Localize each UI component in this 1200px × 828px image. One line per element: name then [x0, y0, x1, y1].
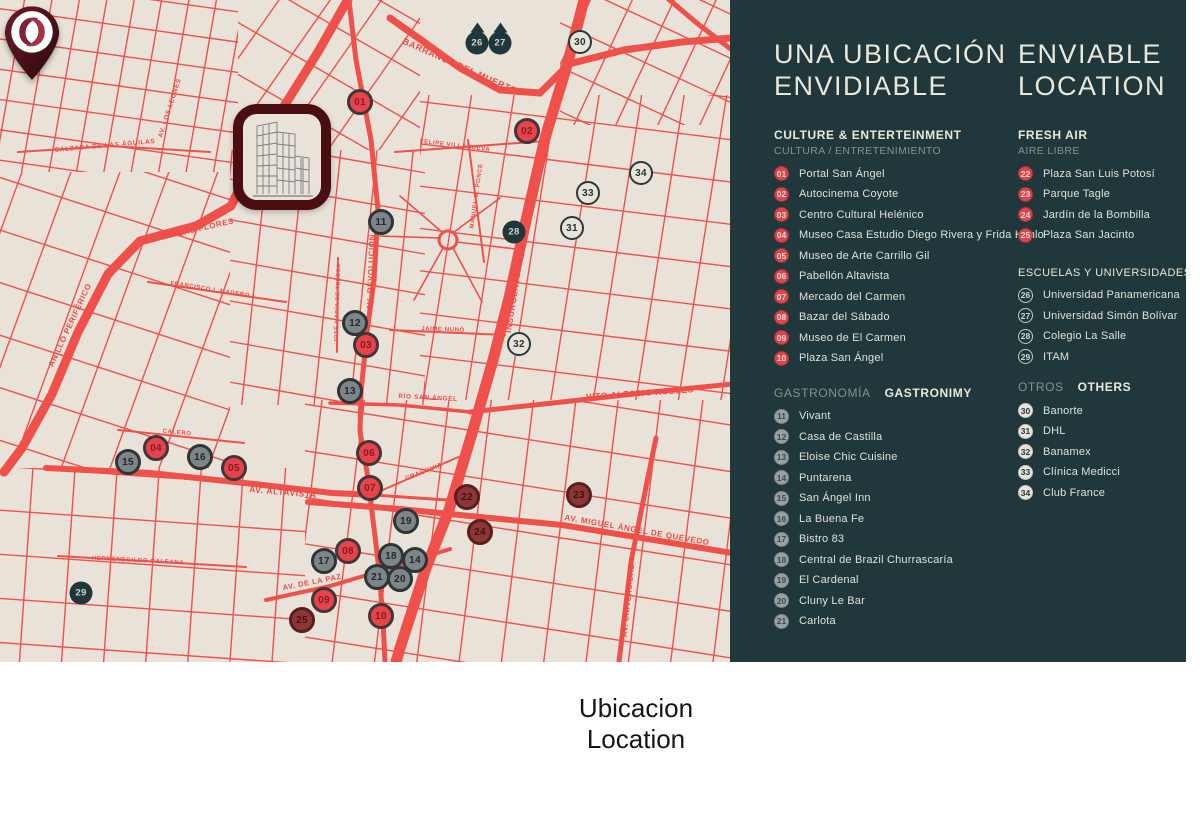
legend-label: Carlota	[799, 615, 836, 627]
legend-item-19: 19El Cardenal	[774, 573, 1010, 588]
map-marker-04: 04	[143, 435, 169, 461]
legend-label: Pabellón Altavista	[799, 270, 889, 282]
legend-marker-01: 01	[774, 166, 789, 181]
legend-label: Bazar del Sábado	[799, 311, 890, 323]
map-marker-05: 05	[221, 455, 247, 481]
legend-marker-10: 10	[774, 351, 789, 366]
legend-item-07: 07Mercado del Carmen	[774, 289, 1010, 304]
map-marker-15: 15	[115, 449, 141, 475]
legend-marker-26: 26	[1018, 288, 1033, 303]
gastronomy-heading: GASTRONOMÍAGASTRONIMY	[774, 386, 1010, 400]
legend-item-15: 15San Ángel Inn	[774, 491, 1010, 506]
map-marker-30: 30	[568, 30, 592, 54]
legend-marker-17: 17	[774, 532, 789, 547]
fresh-air-heading-en: FRESH AIR	[1018, 128, 1178, 142]
map-marker-16: 16	[187, 444, 213, 470]
legend-item-20: 20Cluny Le Bar	[774, 593, 1010, 608]
map-marker-01: 01	[347, 89, 373, 115]
legend-label: Universidad Simón Bolívar	[1043, 310, 1178, 322]
map-marker-29: 29	[70, 582, 93, 605]
map-marker-19: 19	[393, 508, 419, 534]
legend-item-25: 25Plaza San Jacinto	[1018, 228, 1178, 243]
legend-label: La Buena Fe	[799, 513, 864, 525]
section-schools: ESCUELAS Y UNIVERSIDADES 26Universidad P…	[1018, 267, 1178, 365]
legend-marker-18: 18	[774, 552, 789, 567]
schools-list: 26Universidad Panamericana27Universidad …	[1018, 288, 1178, 365]
legend-marker-08: 08	[774, 310, 789, 325]
legend-label: Club France	[1043, 487, 1105, 499]
legend-label: El Cardenal	[799, 574, 859, 586]
legend-item-02: 02Autocinema Coyote	[774, 187, 1010, 202]
legend-label: Clínica Medicci	[1043, 466, 1120, 478]
culture-heading-en: CULTURE & ENTERTEINMENT	[774, 128, 1010, 142]
map-marker-08: 08	[335, 538, 361, 564]
legend-label: Plaza San Jacinto	[1043, 229, 1134, 241]
legend-item-23: 23Parque Tagle	[1018, 187, 1178, 202]
legend-label: ITAM	[1043, 351, 1069, 363]
legend-item-32: 32Banamex	[1018, 444, 1178, 459]
legend-item-08: 08Bazar del Sábado	[774, 310, 1010, 325]
panel-left-column: CULTURE & ENTERTEINMENT CULTURA / ENTRET…	[774, 128, 1010, 634]
legend-marker-21: 21	[774, 614, 789, 629]
map-marker-32: 32	[507, 332, 531, 356]
page-caption: Ubicacion Location	[579, 693, 693, 755]
legend-marker-19: 19	[774, 573, 789, 588]
legend-item-03: 03Centro Cultural Helénico	[774, 207, 1010, 222]
legend-label: Central de Brazil Churrascaría	[799, 554, 953, 566]
legend-marker-04: 04	[774, 228, 789, 243]
map-marker-13: 13	[337, 378, 363, 404]
legend-item-17: 17Bistro 83	[774, 532, 1010, 547]
legend-label: Banamex	[1043, 446, 1091, 458]
legend-marker-29: 29	[1018, 349, 1033, 364]
legend-marker-06: 06	[774, 269, 789, 284]
map-marker-06: 06	[356, 440, 382, 466]
legend-marker-16: 16	[774, 511, 789, 526]
map-marker-10: 10	[368, 603, 394, 629]
legend-item-24: 24Jardín de la Bombilla	[1018, 207, 1178, 222]
legend-item-21: 21Carlota	[774, 614, 1010, 629]
location-map: CALZADA DE LAS ÁGUILASAV. LOS LEONESBARR…	[0, 0, 730, 662]
legend-item-12: 12Casa de Castilla	[774, 429, 1010, 444]
others-heading: OTROSOTHERS	[1018, 380, 1178, 394]
legend-label: Jardín de la Bombilla	[1043, 209, 1150, 221]
legend-marker-11: 11	[774, 409, 789, 424]
panel-right-column: FRESH AIR AIRE LIBRE 22Plaza San Luis Po…	[1018, 128, 1178, 506]
legend-item-16: 16La Buena Fe	[774, 511, 1010, 526]
gastronomy-list: 11Vivant12Casa de Castilla13Eloise Chic …	[774, 409, 1010, 629]
pin-triangle-icon	[470, 23, 484, 33]
legend-marker-14: 14	[774, 470, 789, 485]
legend-marker-25: 25	[1018, 228, 1033, 243]
legend-item-14: 14Puntarena	[774, 470, 1010, 485]
legend-label: Bistro 83	[799, 533, 844, 545]
legend-marker-09: 09	[774, 330, 789, 345]
legend-marker-24: 24	[1018, 207, 1033, 222]
legend-item-29: 29ITAM	[1018, 349, 1178, 364]
map-marker-11: 11	[368, 209, 394, 235]
schools-heading: ESCUELAS Y UNIVERSIDADES	[1018, 267, 1178, 279]
legend-label: Portal San Ángel	[799, 168, 885, 180]
map-marker-17: 17	[311, 548, 337, 574]
legend-item-09: 09Museo de El Carmen	[774, 330, 1010, 345]
building-frame	[233, 104, 331, 210]
legend-label: Plaza San Ángel	[799, 352, 883, 364]
culture-heading-es: CULTURA / ENTRETENIMIENTO	[774, 145, 1010, 157]
legend-marker-30: 30	[1018, 403, 1033, 418]
pin-triangle-icon	[493, 23, 507, 33]
map-marker-26: 26	[466, 32, 489, 55]
legend-label: Puntarena	[799, 472, 852, 484]
legend-label: Eloise Chic Cuisine	[799, 451, 898, 463]
legend-label: Plaza San Luis Potosí	[1043, 168, 1155, 180]
legend-item-10: 10Plaza San Ángel	[774, 351, 1010, 366]
map-marker-25: 25	[289, 607, 315, 633]
fresh-air-list: 22Plaza San Luis Potosí23Parque Tagle24J…	[1018, 166, 1178, 243]
legend-label: Museo de Arte Carrillo Gil	[799, 250, 930, 262]
legend-marker-07: 07	[774, 289, 789, 304]
legend-item-31: 31DHL	[1018, 424, 1178, 439]
legend-label: Casa de Castilla	[799, 431, 882, 443]
section-fresh-air: FRESH AIR AIRE LIBRE 22Plaza San Luis Po…	[1018, 128, 1178, 243]
legend-label: Banorte	[1043, 405, 1083, 417]
legend-item-28: 28Colegio La Salle	[1018, 329, 1178, 344]
legend-item-30: 30Banorte	[1018, 403, 1178, 418]
map-marker-09: 09	[311, 587, 337, 613]
panel-title-es: UNA UBICACIÓN ENVIDIABLE	[774, 38, 1007, 102]
legend-item-33: 33Clínica Medicci	[1018, 465, 1178, 480]
brand-pin	[0, 0, 64, 83]
map-marker-02: 02	[514, 118, 540, 144]
legend-item-05: 05Museo de Arte Carrillo Gil	[774, 248, 1010, 263]
map-marker-33: 33	[576, 181, 600, 205]
legend-label: Vivant	[799, 410, 831, 422]
map-marker-12: 12	[342, 310, 368, 336]
section-gastronomy: GASTRONOMÍAGASTRONIMY 11Vivant12Casa de …	[774, 386, 1010, 629]
legend-marker-32: 32	[1018, 444, 1033, 459]
legend-label: Universidad Panamericana	[1043, 289, 1180, 301]
legend-label: Cluny Le Bar	[799, 595, 865, 607]
section-culture: CULTURE & ENTERTEINMENT CULTURA / ENTRET…	[774, 128, 1010, 366]
legend-marker-23: 23	[1018, 187, 1033, 202]
map-marker-21: 21	[364, 564, 390, 590]
legend-marker-27: 27	[1018, 308, 1033, 323]
map-marker-31: 31	[560, 216, 584, 240]
legend-marker-33: 33	[1018, 465, 1033, 480]
legend-marker-05: 05	[774, 248, 789, 263]
legend-item-06: 06Pabellón Altavista	[774, 269, 1010, 284]
others-list: 30Banorte31DHL32Banamex33Clínica Medicci…	[1018, 403, 1178, 500]
legend-marker-13: 13	[774, 450, 789, 465]
map-marker-34: 34	[629, 161, 653, 185]
legend-label: Mercado del Carmen	[799, 291, 905, 303]
legend-item-34: 34Club France	[1018, 485, 1178, 500]
map-marker-28: 28	[503, 221, 526, 244]
legend-label: Autocinema Coyote	[799, 188, 898, 200]
legend-marker-20: 20	[774, 593, 789, 608]
legend-item-04: 04Museo Casa Estudio Diego Rivera y Frid…	[774, 228, 1010, 243]
legend-label: Museo de El Carmen	[799, 332, 906, 344]
legend-item-11: 11Vivant	[774, 409, 1010, 424]
fresh-air-heading-es: AIRE LIBRE	[1018, 145, 1178, 157]
map-marker-07: 07	[357, 475, 383, 501]
legend-item-27: 27Universidad Simón Bolívar	[1018, 308, 1178, 323]
legend-marker-34: 34	[1018, 485, 1033, 500]
legend-item-01: 01Portal San Ángel	[774, 166, 1010, 181]
legend-label: Centro Cultural Helénico	[799, 209, 924, 221]
legend-marker-22: 22	[1018, 166, 1033, 181]
culture-list: 01Portal San Ángel02Autocinema Coyote03C…	[774, 166, 1010, 366]
caption-en: Location	[579, 724, 693, 755]
legend-marker-12: 12	[774, 429, 789, 444]
section-others: OTROSOTHERS 30Banorte31DHL32Banamex33Clí…	[1018, 380, 1178, 500]
legend-item-18: 18Central de Brazil Churrascaría	[774, 552, 1010, 567]
map-marker-27: 27	[489, 32, 512, 55]
map-marker-22: 22	[454, 484, 480, 510]
building-sketch	[243, 114, 321, 200]
legend-label: Museo Casa Estudio Diego Rivera y Frida …	[799, 229, 1044, 241]
legend-label: Parque Tagle	[1043, 188, 1110, 200]
legend-panel: UNA UBICACIÓN ENVIDIABLE ENVIABLE LOCATI…	[730, 0, 1186, 662]
caption-es: Ubicacion	[579, 693, 693, 724]
legend-label: San Ángel Inn	[799, 492, 871, 504]
legend-label: Colegio La Salle	[1043, 330, 1126, 342]
legend-item-22: 22Plaza San Luis Potosí	[1018, 166, 1178, 181]
legend-marker-28: 28	[1018, 329, 1033, 344]
map-marker-20: 20	[387, 566, 413, 592]
legend-marker-03: 03	[774, 207, 789, 222]
map-marker-24: 24	[467, 519, 493, 545]
legend-marker-15: 15	[774, 491, 789, 506]
legend-marker-02: 02	[774, 187, 789, 202]
legend-item-13: 13Eloise Chic Cuisine	[774, 450, 1010, 465]
legend-marker-31: 31	[1018, 424, 1033, 439]
legend-item-26: 26Universidad Panamericana	[1018, 288, 1178, 303]
map-marker-23: 23	[566, 482, 592, 508]
panel-title-en: ENVIABLE LOCATION	[1018, 38, 1166, 102]
map-marker-03: 03	[353, 332, 379, 358]
legend-label: DHL	[1043, 425, 1066, 437]
page: CALZADA DE LAS ÁGUILASAV. LOS LEONESBARR…	[0, 0, 1200, 828]
